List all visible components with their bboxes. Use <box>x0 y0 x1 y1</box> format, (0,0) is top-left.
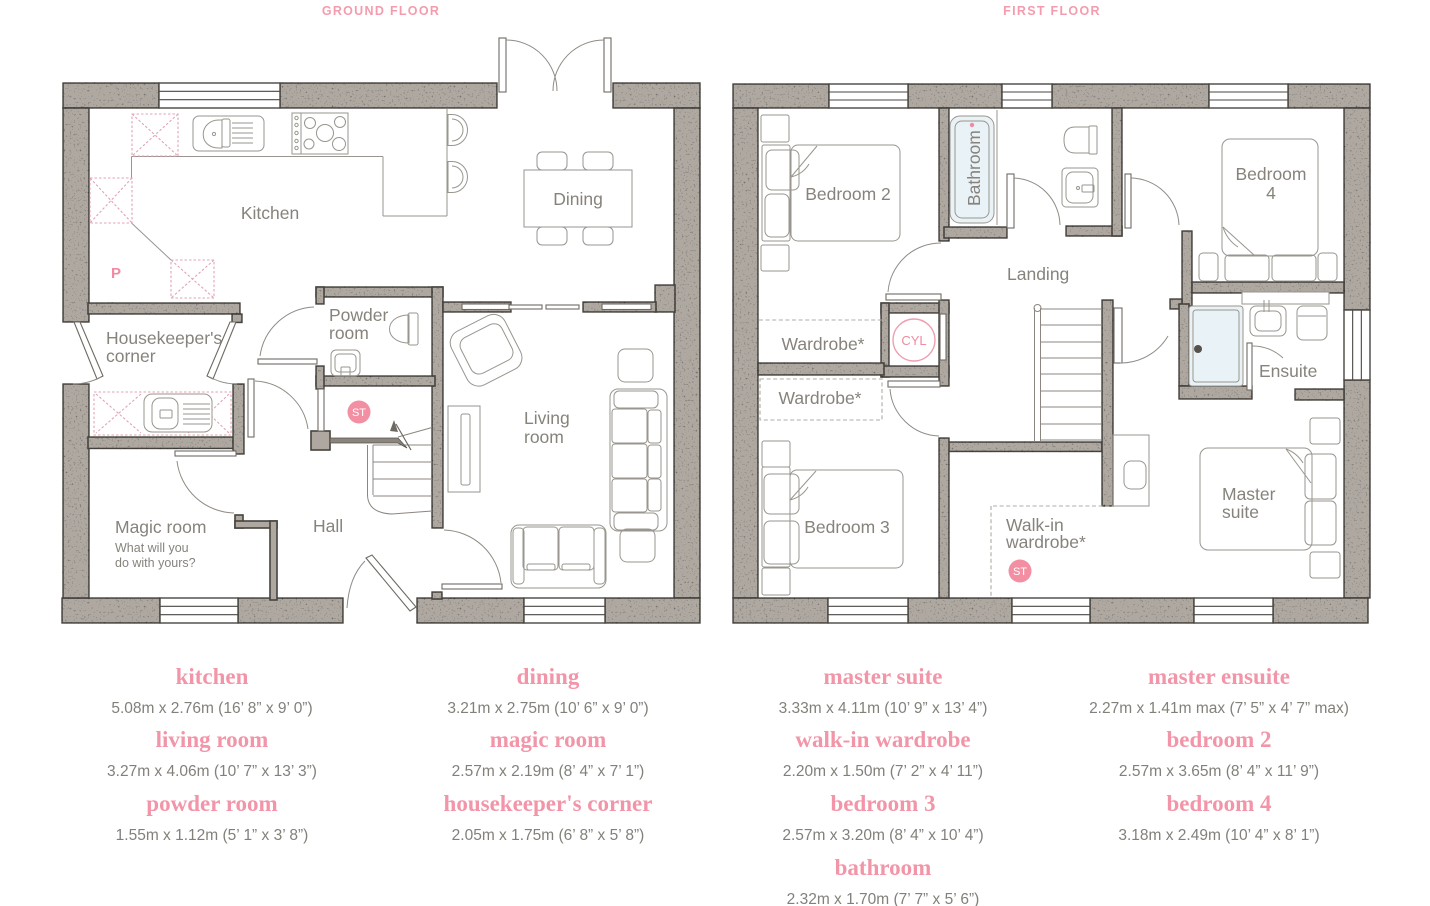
svg-text:5.08m x 2.76m (16’ 8” x 9’ 0”): 5.08m x 2.76m (16’ 8” x 9’ 0”) <box>111 700 312 717</box>
svg-text:2.20m x 1.50m (7’ 2” x 4’ 11”): 2.20m x 1.50m (7’ 2” x 4’ 11”) <box>783 763 983 780</box>
svg-text:dining: dining <box>517 664 580 689</box>
svg-text:2.57m x 2.19m (8’ 4” x 7’ 1”): 2.57m x 2.19m (8’ 4” x 7’ 1”) <box>452 763 645 780</box>
svg-text:Bedroom: Bedroom <box>1235 164 1306 184</box>
svg-text:master suite: master suite <box>823 664 942 689</box>
svg-text:Dining: Dining <box>553 189 603 209</box>
svg-text:1.55m x 1.12m (5’ 1” x 3’ 8”): 1.55m x 1.12m (5’ 1” x 3’ 8”) <box>116 827 309 844</box>
svg-text:do with yours?: do with yours? <box>115 556 196 570</box>
svg-text:Powder: Powder <box>329 305 389 325</box>
svg-text:3.21m x 2.75m (10’ 6” x 9’ 0”): 3.21m x 2.75m (10’ 6” x 9’ 0”) <box>447 700 648 717</box>
svg-text:2.27m x 1.41m max (7’ 5” x 4’: 2.27m x 1.41m max (7’ 5” x 4’ 7” max) <box>1089 700 1349 717</box>
svg-text:Landing: Landing <box>1007 264 1069 284</box>
svg-text:Wardrobe*: Wardrobe* <box>779 388 862 408</box>
svg-text:Wardrobe*: Wardrobe* <box>782 334 865 354</box>
svg-text:Kitchen: Kitchen <box>241 203 299 223</box>
svg-text:Magic room: Magic room <box>115 517 206 537</box>
svg-text:bedroom 3: bedroom 3 <box>831 791 936 816</box>
svg-text:magic room: magic room <box>490 727 606 752</box>
svg-text:4: 4 <box>1266 183 1276 203</box>
svg-text:master ensuite: master ensuite <box>1148 664 1290 689</box>
svg-text:Ensuite: Ensuite <box>1259 361 1317 381</box>
svg-text:walk-in wardrobe: walk-in wardrobe <box>795 727 970 752</box>
svg-text:2.05m x 1.75m (6’ 8” x 5’ 8”): 2.05m x 1.75m (6’ 8” x 5’ 8”) <box>452 827 645 844</box>
svg-text:bedroom 4: bedroom 4 <box>1167 791 1272 816</box>
svg-text:Bedroom 3: Bedroom 3 <box>804 517 890 537</box>
svg-text:3.33m x 4.11m (10’ 9” x 13’ 4”: 3.33m x 4.11m (10’ 9” x 13’ 4”) <box>779 700 988 717</box>
svg-text:2.57m x 3.65m (8’ 4” x 11’ 9”): 2.57m x 3.65m (8’ 4” x 11’ 9”) <box>1119 763 1319 780</box>
svg-text:2.57m x 3.20m (8’ 4” x 10’ 4”): 2.57m x 3.20m (8’ 4” x 10’ 4”) <box>782 827 983 844</box>
svg-text:housekeeper's corner: housekeeper's corner <box>444 791 653 816</box>
svg-text:ST: ST <box>1013 566 1027 578</box>
svg-text:GROUND FLOOR: GROUND FLOOR <box>322 4 440 18</box>
svg-text:CYL: CYL <box>901 333 926 348</box>
svg-text:Hall: Hall <box>313 516 343 536</box>
svg-text:powder room: powder room <box>146 791 277 816</box>
svg-text:living room: living room <box>156 727 269 752</box>
svg-text:wardrobe*: wardrobe* <box>1005 532 1086 552</box>
svg-text:room: room <box>524 427 564 447</box>
svg-text:Bathroom: Bathroom <box>964 130 984 206</box>
svg-text:3.27m x 4.06m (10’ 7” x 13’ 3”: 3.27m x 4.06m (10’ 7” x 13’ 3”) <box>107 763 317 780</box>
svg-text:3.18m x 2.49m (10’ 4” x 8’ 1”): 3.18m x 2.49m (10’ 4” x 8’ 1”) <box>1118 827 1319 844</box>
svg-text:Living: Living <box>524 408 570 428</box>
svg-text:kitchen: kitchen <box>176 664 249 689</box>
svg-text:bathroom: bathroom <box>835 855 932 880</box>
svg-text:Bedroom 2: Bedroom 2 <box>805 184 891 204</box>
svg-text:Master: Master <box>1222 484 1276 504</box>
svg-text:2.32m x 1.70m (7’ 7” x 5’ 6”): 2.32m x 1.70m (7’ 7” x 5’ 6”) <box>787 891 980 906</box>
svg-text:Housekeeper's: Housekeeper's <box>106 328 222 348</box>
svg-text:P: P <box>111 265 121 282</box>
svg-text:room: room <box>329 323 369 343</box>
svg-text:bedroom 2: bedroom 2 <box>1167 727 1272 752</box>
svg-text:What will you: What will you <box>115 541 189 555</box>
svg-text:FIRST FLOOR: FIRST FLOOR <box>1003 4 1101 18</box>
svg-text:ST: ST <box>352 407 366 419</box>
svg-text:suite: suite <box>1222 502 1259 522</box>
svg-text:corner: corner <box>106 346 156 366</box>
